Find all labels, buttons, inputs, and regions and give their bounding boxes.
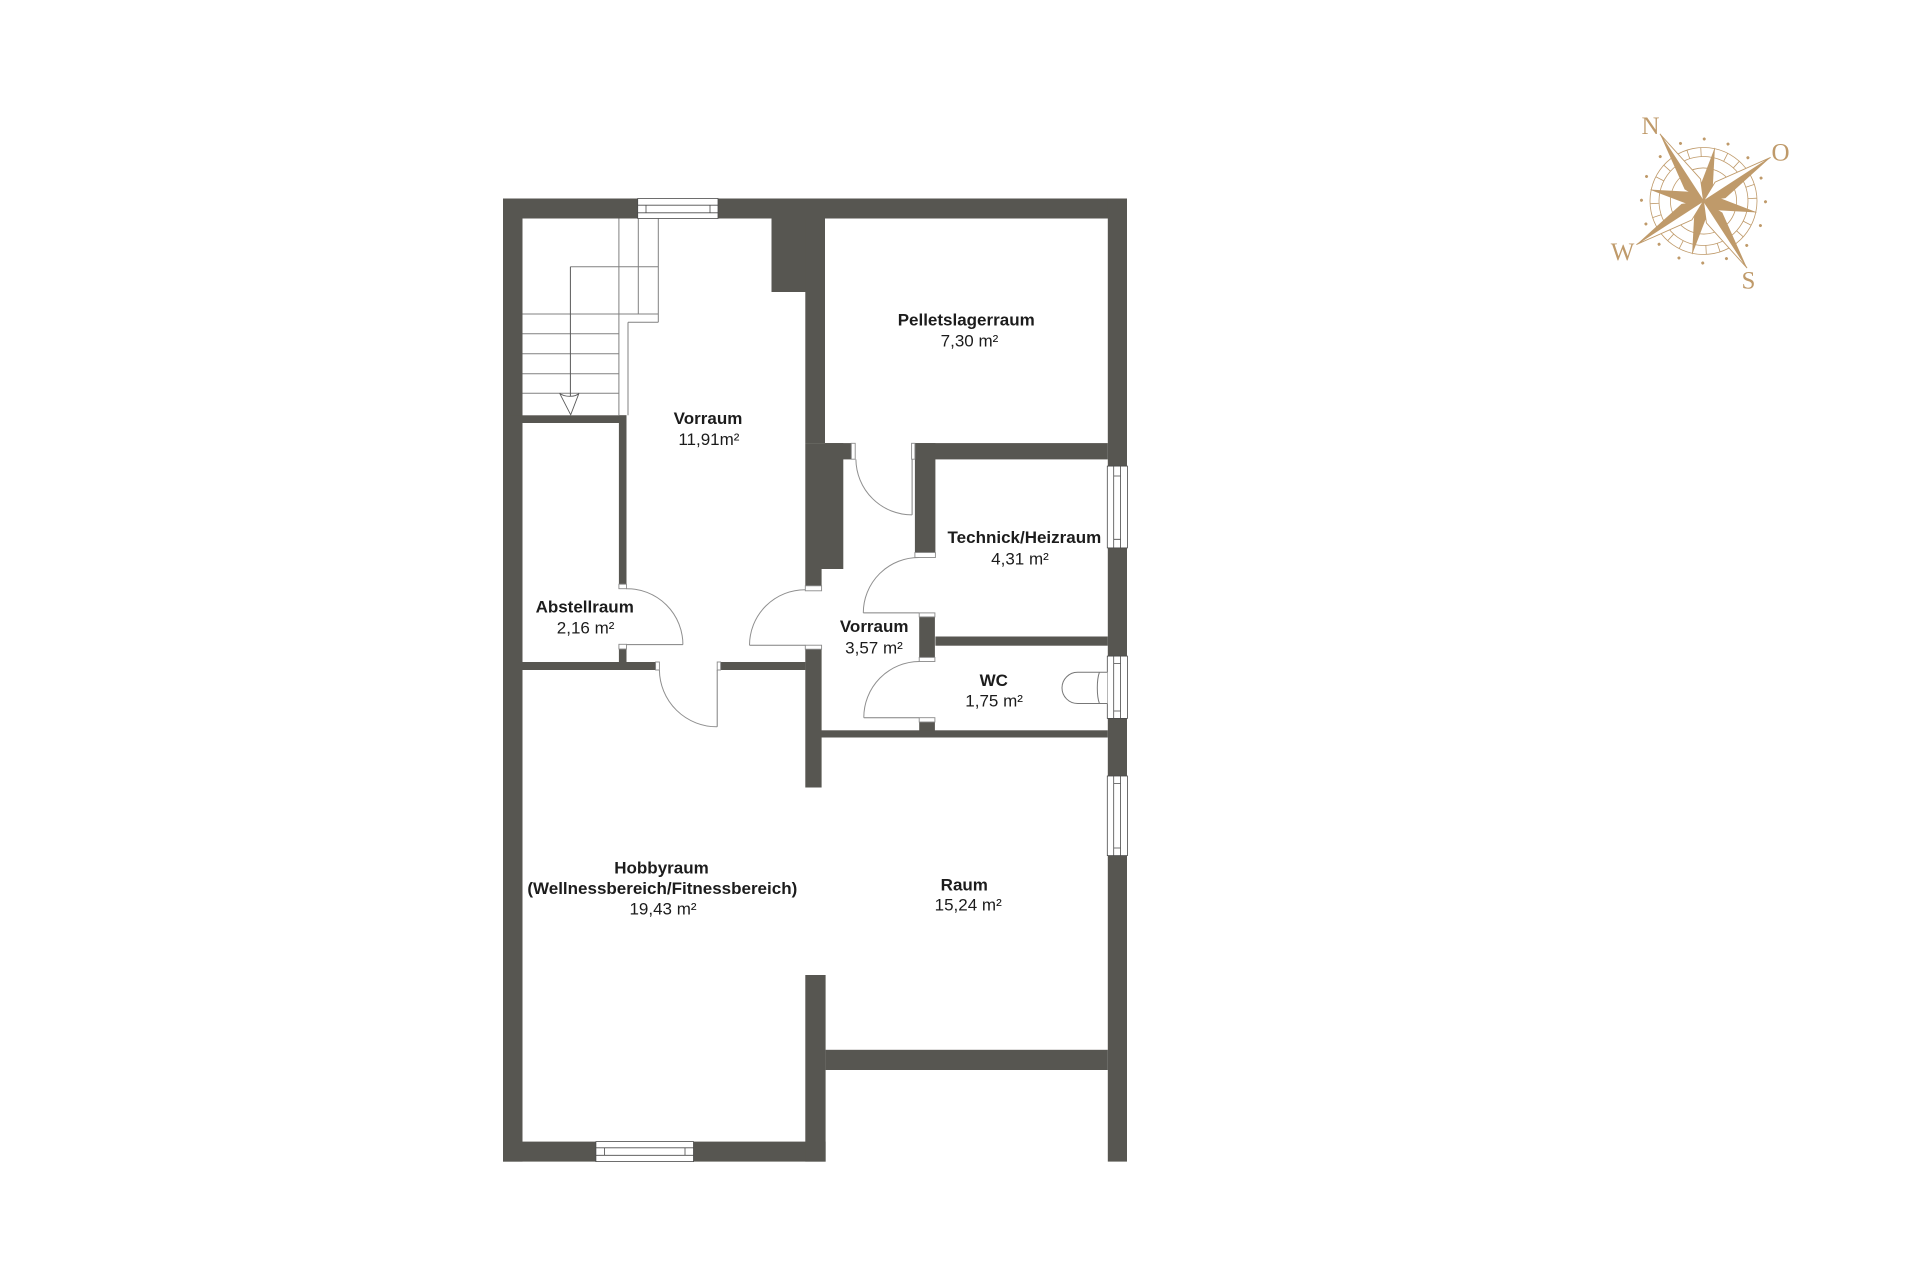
svg-text:11,91m²: 11,91m² (678, 430, 739, 449)
svg-text:Hobbyraum: Hobbyraum (614, 859, 708, 878)
svg-text:Vorraum: Vorraum (674, 409, 743, 428)
svg-text:4,31 m²: 4,31 m² (991, 550, 1049, 569)
svg-text:3,57 m²: 3,57 m² (845, 638, 903, 657)
svg-text:W: W (1611, 239, 1635, 266)
svg-text:O: O (1771, 139, 1789, 166)
svg-text:15,24 m²: 15,24 m² (935, 896, 1002, 915)
svg-text:19,43 m²: 19,43 m² (629, 900, 696, 919)
svg-text:Technick/Heizraum: Technick/Heizraum (948, 528, 1102, 547)
svg-text:Raum: Raum (941, 875, 988, 894)
svg-text:(Wellnessbereich/Fitnessbereic: (Wellnessbereich/Fitnessbereich) (527, 879, 797, 898)
svg-text:S: S (1742, 267, 1756, 294)
svg-text:Pelletslagerraum: Pelletslagerraum (898, 311, 1035, 330)
svg-text:2,16 m²: 2,16 m² (557, 619, 615, 638)
svg-text:N: N (1641, 113, 1659, 140)
svg-text:Abstellraum: Abstellraum (536, 598, 634, 617)
svg-text:1,75 m²: 1,75 m² (965, 691, 1023, 710)
svg-text:7,30 m²: 7,30 m² (941, 331, 999, 350)
svg-text:Vorraum: Vorraum (840, 617, 909, 636)
svg-text:WC: WC (980, 671, 1008, 690)
